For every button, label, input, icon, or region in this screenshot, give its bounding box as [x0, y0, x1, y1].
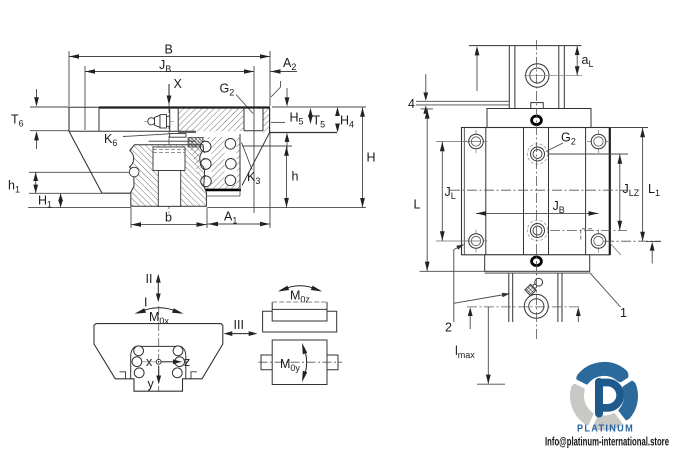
svg-text:X: X	[174, 77, 183, 91]
svg-text:4: 4	[408, 97, 415, 111]
svg-text:L: L	[414, 198, 421, 212]
svg-text:1: 1	[620, 306, 627, 320]
svg-text:I: I	[144, 296, 147, 310]
svg-text:Info@platinum-international.st: Info@platinum-international.store	[545, 437, 669, 449]
svg-text:II: II	[146, 272, 153, 286]
svg-text:b: b	[165, 211, 172, 225]
svg-text:y: y	[148, 377, 155, 391]
svg-text:III: III	[234, 318, 244, 332]
svg-text:z: z	[184, 355, 190, 369]
svg-text:h: h	[292, 170, 299, 184]
svg-text:x: x	[146, 355, 153, 369]
svg-text:H: H	[367, 151, 376, 165]
svg-text:PLATINUM: PLATINUM	[577, 423, 634, 435]
svg-text:2: 2	[445, 321, 452, 335]
svg-text:B: B	[165, 43, 173, 57]
